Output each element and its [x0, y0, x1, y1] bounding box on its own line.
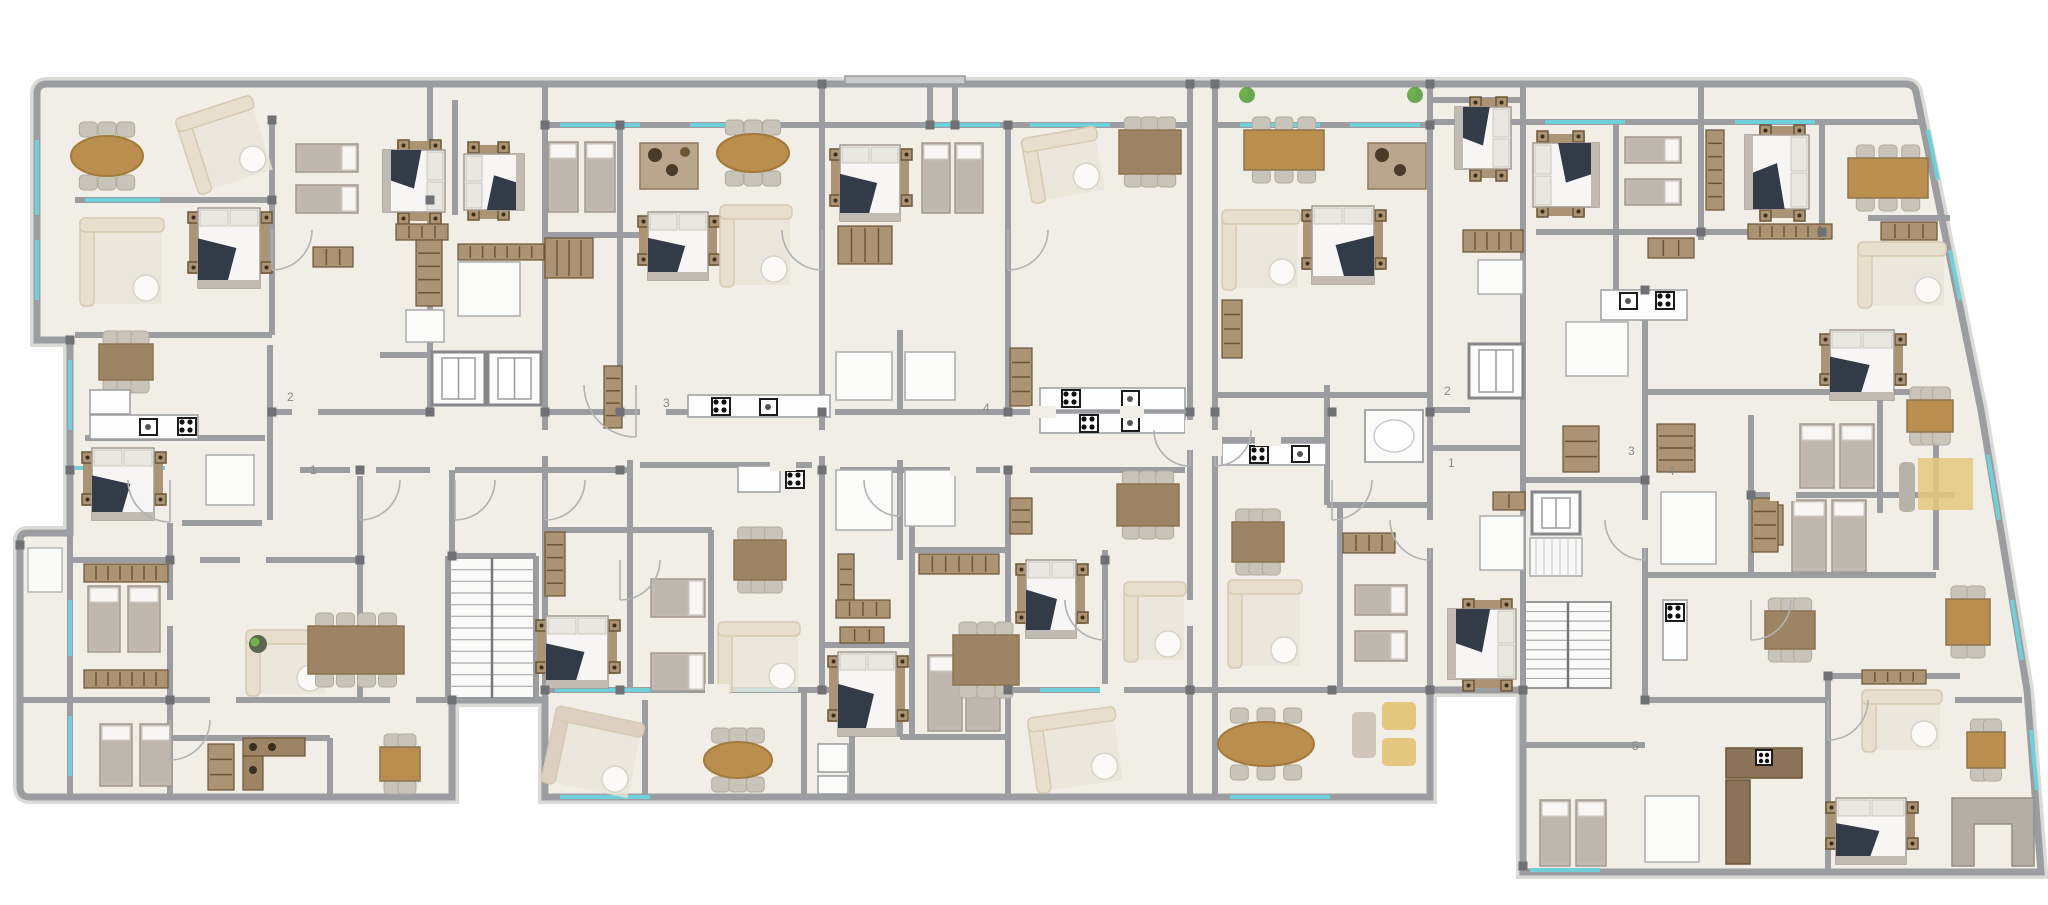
svg-text:3: 3 [1628, 444, 1635, 458]
svg-text:1: 1 [1448, 456, 1455, 470]
svg-text:3: 3 [663, 396, 670, 410]
svg-text:4: 4 [983, 401, 990, 415]
svg-text:2: 2 [287, 390, 294, 404]
svg-text:1: 1 [310, 463, 317, 477]
svg-text:5: 5 [1632, 739, 1639, 753]
svg-text:4: 4 [1668, 464, 1675, 478]
svg-text:2: 2 [1444, 384, 1451, 398]
